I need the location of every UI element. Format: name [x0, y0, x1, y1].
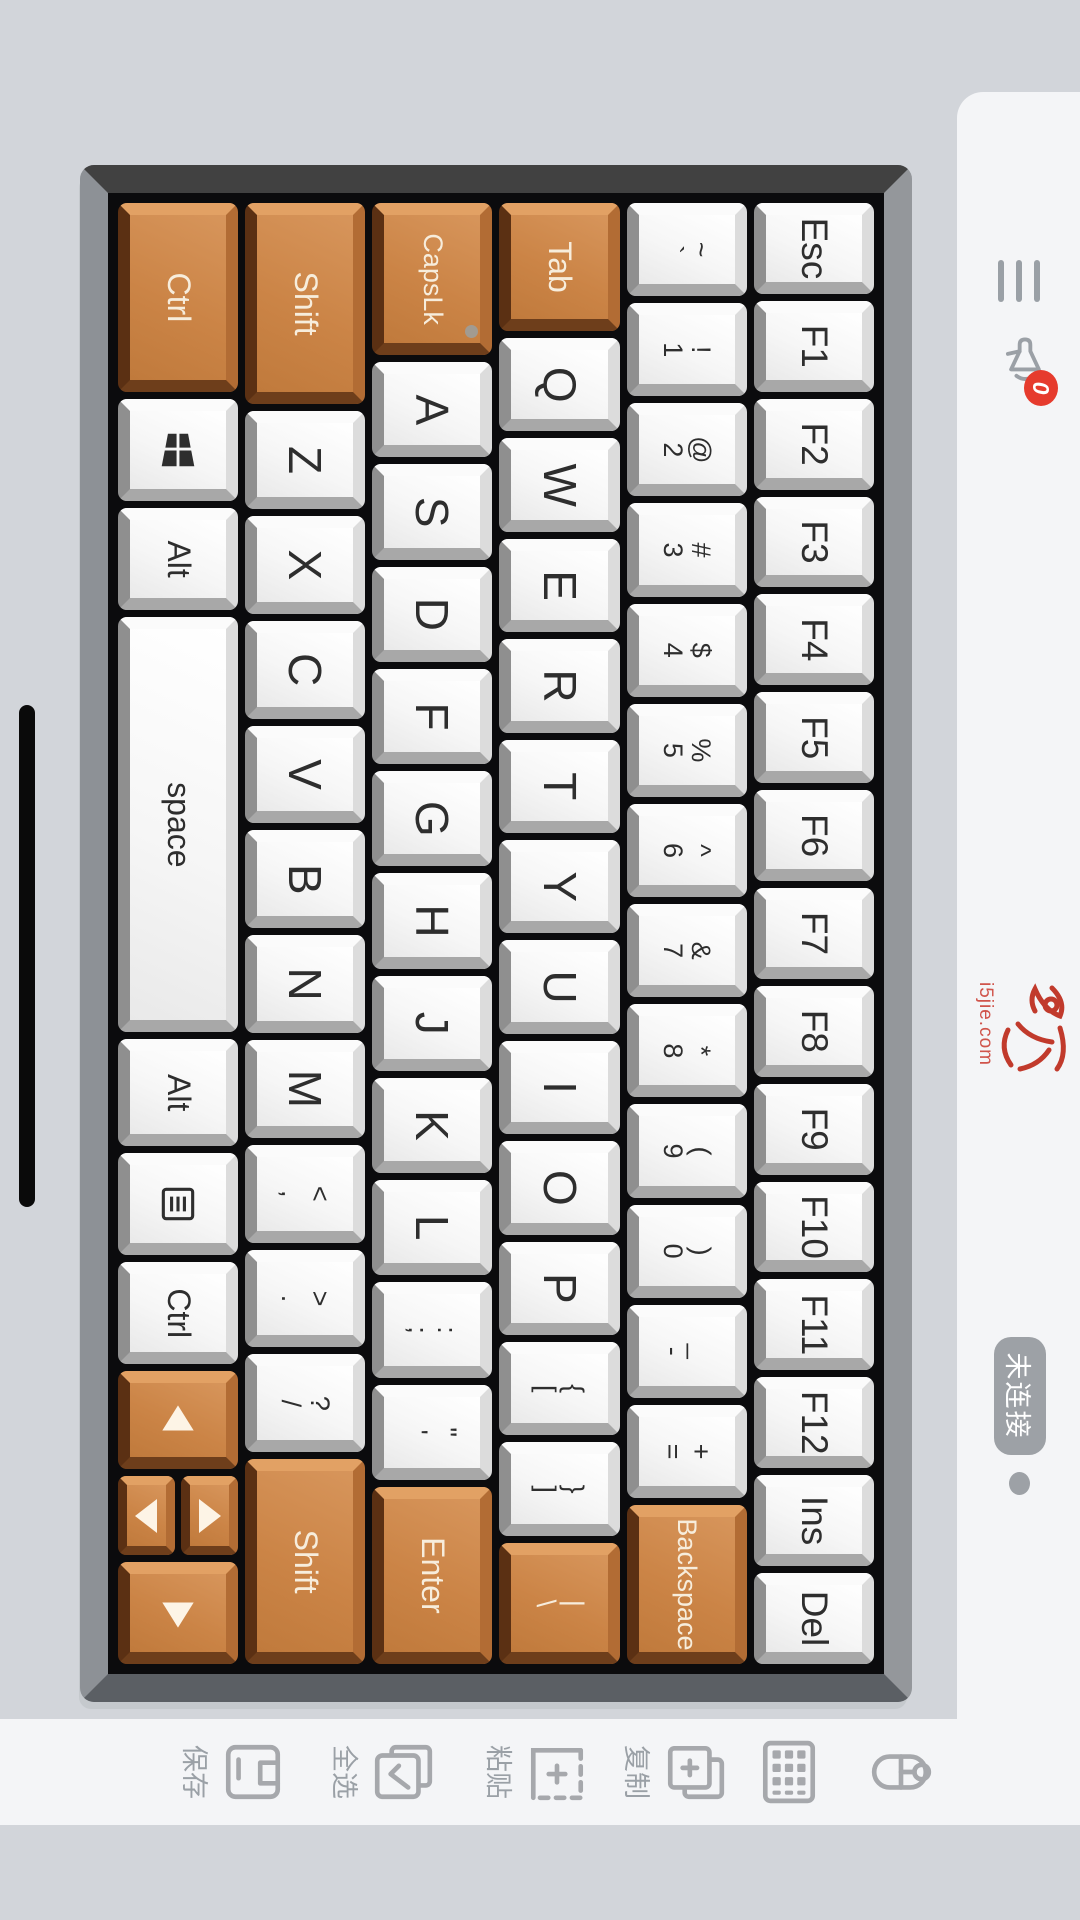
- keyboard-row: ShiftZXCVBNM<,>.?/Shift: [245, 203, 365, 1664]
- key-f7[interactable]: F7: [754, 888, 874, 979]
- key-shift-glyph: ): [687, 1247, 715, 1256]
- key-label: space: [160, 782, 197, 867]
- key-label: Backspace: [671, 1518, 702, 1650]
- key-label: Alt: [160, 1074, 197, 1111]
- key-b[interactable]: B: [245, 830, 365, 928]
- key-f5[interactable]: F5: [754, 692, 874, 783]
- key-1[interactable]: !1: [627, 303, 747, 396]
- key-del[interactable]: Del: [754, 1573, 874, 1664]
- key-label: Esc: [793, 218, 835, 280]
- key-label: H: [405, 904, 459, 937]
- key-shift-glyph: |: [560, 1600, 588, 1607]
- key-label: Shift: [287, 1530, 324, 1594]
- toolbar-item-keypad[interactable]: [760, 1719, 818, 1825]
- key-label: D: [405, 598, 459, 631]
- key-base-glyph: ,: [277, 1190, 305, 1198]
- key-a[interactable]: A: [372, 362, 492, 457]
- key-ins[interactable]: Ins: [754, 1475, 874, 1566]
- key-base-glyph: ;: [404, 1326, 432, 1334]
- key-base-glyph: 4: [658, 643, 686, 658]
- key-label: F3: [793, 520, 835, 563]
- key-label: F2: [793, 423, 835, 466]
- key-f11[interactable]: F11: [754, 1279, 874, 1370]
- key-6[interactable]: ^6: [627, 804, 747, 897]
- key-shift-glyph: >: [305, 1291, 333, 1307]
- key-shift-glyph: ~: [687, 242, 715, 258]
- key-m[interactable]: M: [245, 1040, 365, 1138]
- key-quote[interactable]: "': [372, 1385, 492, 1480]
- key-label: G: [405, 801, 459, 837]
- key-shift-left[interactable]: Shift: [245, 203, 365, 404]
- key-shift-glyph: *: [687, 1046, 715, 1057]
- key-comma[interactable]: <,: [245, 1145, 365, 1243]
- key-label: R: [533, 669, 587, 702]
- key-j[interactable]: J: [372, 976, 492, 1071]
- key-f9[interactable]: F9: [754, 1084, 874, 1175]
- key-3[interactable]: #3: [627, 503, 747, 596]
- key-label: F4: [793, 618, 835, 661]
- key-n[interactable]: N: [245, 935, 365, 1033]
- key-period[interactable]: >.: [245, 1250, 365, 1348]
- key-k[interactable]: K: [372, 1078, 492, 1173]
- key-d[interactable]: D: [372, 567, 492, 662]
- key-ctrl-right[interactable]: Ctrl: [118, 1262, 238, 1364]
- key-u[interactable]: U: [499, 940, 619, 1033]
- key-w[interactable]: W: [499, 438, 619, 531]
- key-label: B: [278, 864, 332, 895]
- keyboard-row: CapsLkASDFGHJKL:;"'Enter: [372, 203, 492, 1664]
- key-label: A: [405, 395, 459, 426]
- key-shift-glyph: &: [687, 942, 715, 960]
- key-shift-glyph: _: [687, 1344, 715, 1359]
- key-base-glyph: 2: [658, 442, 686, 457]
- key-shift-glyph: +: [687, 1444, 715, 1460]
- paste-icon: [524, 1739, 590, 1805]
- key-label: I: [533, 1081, 587, 1094]
- key-8[interactable]: *8: [627, 1004, 747, 1097]
- toolbar-label: 保存: [177, 1719, 216, 1825]
- key-label: F8: [793, 1010, 835, 1053]
- key-label: S: [405, 497, 459, 528]
- key-base-glyph: /: [277, 1400, 305, 1408]
- key-label: F: [405, 703, 459, 731]
- key-f8[interactable]: F8: [754, 986, 874, 1077]
- key-base-glyph: -: [658, 1347, 686, 1356]
- save-icon: [220, 1739, 286, 1805]
- key-shift-glyph: @: [687, 436, 715, 463]
- key-bracket-open[interactable]: {[: [499, 1342, 619, 1435]
- key-label: C: [278, 653, 332, 686]
- key-label: N: [278, 967, 332, 1000]
- key-q[interactable]: Q: [499, 338, 619, 431]
- key-label: Z: [278, 446, 332, 474]
- key-label: Tab: [541, 241, 578, 293]
- toolbar-item-select-all[interactable]: 全选: [327, 1719, 436, 1825]
- toolbar-label: 复制: [619, 1719, 658, 1825]
- keyboard-row: ~`!1@2#3$4%5^6&7*8(9)0_-+=Backspace: [627, 203, 747, 1664]
- key-base-glyph: =: [658, 1444, 686, 1460]
- key-shift-glyph: %: [687, 738, 715, 762]
- toolbar-item-copy[interactable]: 复制: [619, 1719, 728, 1825]
- key-win[interactable]: [118, 399, 238, 501]
- key-y[interactable]: Y: [499, 840, 619, 933]
- key-label: Shift: [287, 272, 324, 336]
- key-label: F5: [793, 716, 835, 759]
- keypad-icon: [760, 1739, 818, 1805]
- key-r[interactable]: R: [499, 639, 619, 732]
- keyboard-row: CtrlAltspaceAltCtrl: [118, 203, 238, 1664]
- key-base-glyph: [: [531, 1385, 559, 1393]
- announcement-button[interactable]: 0: [986, 328, 1056, 398]
- key-enter[interactable]: Enter: [372, 1487, 492, 1664]
- side-toolbar: 复制 粘贴 全选 保存: [0, 1719, 1080, 1825]
- key-f2[interactable]: F2: [754, 399, 874, 490]
- key-base-glyph: 7: [658, 943, 686, 958]
- gesture-pill[interactable]: [19, 705, 35, 1207]
- key-arrow-right[interactable]: [118, 1562, 238, 1664]
- key-label: Ctrl: [160, 1288, 197, 1338]
- key-label: L: [405, 1215, 459, 1241]
- arrow-left-icon: [158, 1397, 198, 1443]
- toolbar-label: 全选: [327, 1719, 366, 1825]
- brand-logo: i5jie.com: [974, 964, 1072, 1084]
- key-h[interactable]: H: [372, 873, 492, 968]
- key-label: Alt: [160, 540, 197, 577]
- key-label: Y: [533, 871, 587, 902]
- key-4[interactable]: $4: [627, 604, 747, 697]
- key-f12[interactable]: F12: [754, 1377, 874, 1468]
- key-capslock[interactable]: CapsLk: [372, 203, 492, 355]
- key-label: U: [533, 971, 587, 1004]
- key-f[interactable]: F: [372, 669, 492, 764]
- key-grave[interactable]: ~`: [627, 203, 747, 296]
- key-2[interactable]: @2: [627, 403, 747, 496]
- key-shift-glyph: (: [687, 1146, 715, 1155]
- key-label: F12: [793, 1391, 835, 1455]
- key-label: W: [533, 463, 587, 506]
- key-label: Q: [533, 367, 587, 403]
- key-v[interactable]: V: [245, 726, 365, 824]
- key-backspace[interactable]: Backspace: [627, 1505, 747, 1664]
- virtual-keyboard: EscF1F2F3F4F5F6F7F8F9F10F11F12InsDel~`!1…: [80, 165, 912, 1702]
- key-label: V: [278, 759, 332, 790]
- key-shift-right[interactable]: Shift: [245, 1459, 365, 1664]
- key-arrow-down[interactable]: [118, 1476, 175, 1554]
- key-9[interactable]: (9: [627, 1104, 747, 1197]
- key-e[interactable]: E: [499, 539, 619, 632]
- key-f6[interactable]: F6: [754, 790, 874, 881]
- key-base-glyph: 3: [658, 543, 686, 558]
- key-equals[interactable]: +=: [627, 1405, 747, 1498]
- key-label: Enter: [414, 1537, 451, 1613]
- key-space[interactable]: space: [118, 617, 238, 1032]
- key-shift-glyph: :: [432, 1326, 460, 1334]
- key-shift-glyph: }: [560, 1485, 588, 1494]
- toolbar-item-save[interactable]: 保存: [177, 1719, 286, 1825]
- key-backslash[interactable]: |\: [499, 1543, 619, 1664]
- key-label: F11: [793, 1294, 835, 1355]
- key-label: F6: [793, 814, 835, 857]
- key-shift-glyph: $: [687, 643, 715, 658]
- key-shift-glyph: #: [687, 543, 715, 558]
- key-semicolon[interactable]: :;: [372, 1282, 492, 1377]
- key-base-glyph: \: [531, 1600, 559, 1608]
- key-shift-glyph: {: [560, 1384, 588, 1393]
- key-bracket-close[interactable]: }]: [499, 1442, 619, 1535]
- menu-icon[interactable]: [996, 260, 1040, 304]
- key-base-glyph: 0: [658, 1244, 686, 1259]
- key-label: P: [533, 1273, 587, 1304]
- toolbar-label: 粘贴: [481, 1719, 520, 1825]
- key-label: Ins: [793, 1496, 835, 1545]
- key-g[interactable]: G: [372, 771, 492, 866]
- key-z[interactable]: Z: [245, 411, 365, 509]
- key-base-glyph: ': [404, 1430, 432, 1435]
- keyboard-row: TabQWERTYUIOP{[}]|\: [499, 203, 619, 1664]
- key-base-glyph: `: [658, 245, 686, 254]
- key-shift-glyph: ": [432, 1427, 460, 1437]
- copy-icon: [662, 1739, 728, 1805]
- capslock-indicator-led: [465, 325, 478, 338]
- logo-calligraphy-icon: [996, 972, 1072, 1076]
- key-base-glyph: 8: [658, 1043, 686, 1058]
- key-arrow-left[interactable]: [118, 1371, 238, 1469]
- key-base-glyph: 9: [658, 1143, 686, 1158]
- toolbar-item-mouse[interactable]: [868, 1719, 934, 1825]
- key-base-glyph: ]: [531, 1485, 559, 1493]
- key-label: M: [278, 1070, 332, 1108]
- key-alt-left[interactable]: Alt: [118, 508, 238, 610]
- logo-caption: i5jie.com: [974, 964, 996, 1084]
- key-label: E: [533, 570, 587, 601]
- key-base-glyph: 1: [658, 342, 686, 357]
- key-f4[interactable]: F4: [754, 594, 874, 685]
- key-label: CapsLk: [417, 233, 448, 325]
- key-base-glyph: 5: [658, 743, 686, 758]
- key-f1[interactable]: F1: [754, 301, 874, 392]
- key-arrow-stack: [118, 1476, 238, 1554]
- key-base-glyph: .: [277, 1295, 305, 1303]
- top-toolbar: 0 i5jie.com 未连接: [957, 92, 1080, 1825]
- key-label: F7: [793, 912, 835, 955]
- key-shift-glyph: ^: [687, 844, 715, 857]
- key-minus[interactable]: _-: [627, 1305, 747, 1398]
- menu-icon: [156, 1182, 200, 1226]
- notification-badge: 0: [1024, 370, 1058, 406]
- key-menu[interactable]: [118, 1153, 238, 1255]
- key-label: K: [405, 1110, 459, 1141]
- key-l[interactable]: L: [372, 1180, 492, 1275]
- arrow-right-icon: [158, 1590, 198, 1636]
- key-label: X: [278, 550, 332, 581]
- key-shift-glyph: ?: [305, 1396, 333, 1411]
- key-label: O: [533, 1170, 587, 1206]
- key-x[interactable]: X: [245, 516, 365, 614]
- arrow-down-icon: [133, 1495, 161, 1537]
- key-i[interactable]: I: [499, 1041, 619, 1134]
- key-0[interactable]: )0: [627, 1205, 747, 1298]
- toolbar-item-paste[interactable]: 粘贴: [481, 1719, 590, 1825]
- mouse-icon: [868, 1739, 934, 1805]
- key-s[interactable]: S: [372, 464, 492, 559]
- win-logo-icon: [155, 427, 201, 473]
- key-label: F1: [793, 325, 835, 368]
- key-label: Ctrl: [160, 272, 197, 322]
- key-5[interactable]: %5: [627, 704, 747, 797]
- key-o[interactable]: O: [499, 1141, 619, 1234]
- key-shift-glyph: <: [305, 1186, 333, 1202]
- key-label: Del: [793, 1591, 835, 1647]
- key-tab[interactable]: Tab: [499, 203, 619, 331]
- landscape-stage: 0 i5jie.com 未连接: [0, 0, 1080, 1920]
- key-ctrl-left[interactable]: Ctrl: [118, 203, 238, 392]
- key-shift-glyph: !: [687, 346, 715, 354]
- keyboard-row: EscF1F2F3F4F5F6F7F8F9F10F11F12InsDel: [754, 203, 874, 1664]
- key-label: F9: [793, 1108, 835, 1151]
- key-t[interactable]: T: [499, 740, 619, 833]
- select-all-icon: [370, 1739, 436, 1805]
- status-dot-icon: [1009, 1472, 1030, 1495]
- key-7[interactable]: &7: [627, 904, 747, 997]
- key-f3[interactable]: F3: [754, 497, 874, 588]
- key-label: F10: [793, 1195, 835, 1259]
- key-alt-right[interactable]: Alt: [118, 1039, 238, 1145]
- key-arrow-up[interactable]: [181, 1476, 238, 1554]
- connection-status-badge[interactable]: 未连接: [994, 1337, 1046, 1455]
- key-p[interactable]: P: [499, 1242, 619, 1335]
- key-c[interactable]: C: [245, 621, 365, 719]
- key-label: T: [533, 772, 587, 800]
- key-base-glyph: 6: [658, 843, 686, 858]
- key-label: J: [405, 1012, 459, 1035]
- arrow-up-icon: [196, 1495, 224, 1537]
- key-f10[interactable]: F10: [754, 1182, 874, 1273]
- key-esc[interactable]: Esc: [754, 203, 874, 294]
- key-slash[interactable]: ?/: [245, 1354, 365, 1452]
